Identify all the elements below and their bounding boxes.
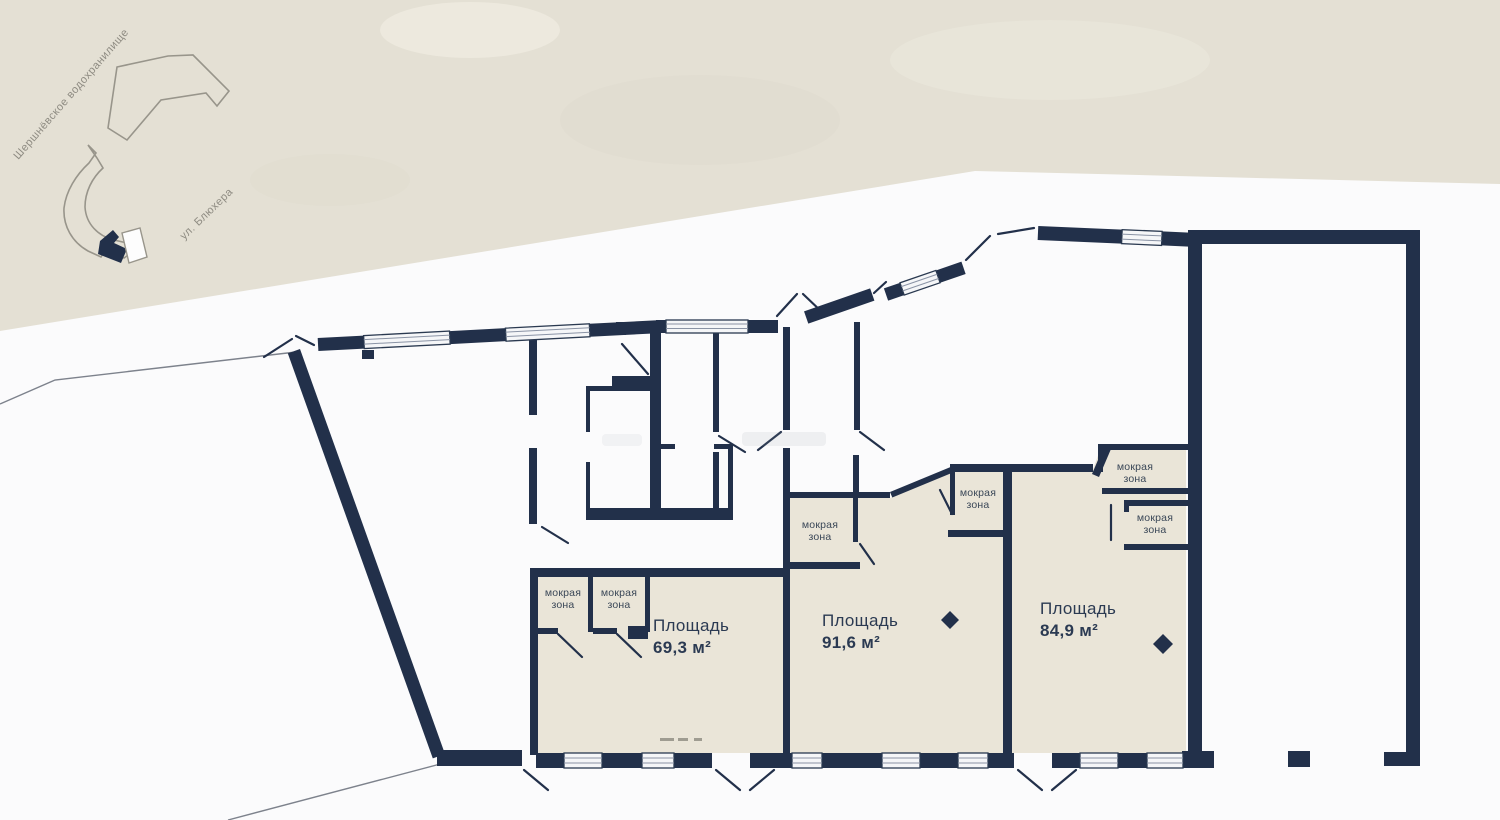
room-area-caption: Площадь (822, 610, 898, 632)
room-area-caption: Площадь (1040, 598, 1116, 620)
wetzone-label-69b: мокрая зона (584, 587, 654, 612)
floor-plan-canvas (0, 0, 1500, 820)
room-91-6-label: Площадь 91,6 м² (822, 610, 898, 654)
room-area-value: 84,9 м² (1040, 620, 1116, 642)
room-69-3-label: Площадь 69,3 м² (653, 615, 729, 659)
wet-line2: зона (943, 499, 1013, 511)
wetzone-label-84a: мокрая зона (1100, 461, 1170, 486)
wetzone-label-91a: мокрая зона (785, 519, 855, 544)
floorplan-page: Шершнёвское водохранилище ул. Блюхера Пл… (0, 0, 1500, 820)
wet-line1: мокрая (943, 487, 1013, 499)
wet-line2: зона (785, 531, 855, 543)
wetzone-label-84b: мокрая зона (1120, 512, 1190, 537)
wet-line1: мокрая (1100, 461, 1170, 473)
background (0, 0, 1500, 331)
room-area-value: 69,3 м² (653, 637, 729, 659)
wet-line2: зона (1100, 473, 1170, 485)
room-84-9-label: Площадь 84,9 м² (1040, 598, 1116, 642)
room-area-value: 91,6 м² (822, 632, 898, 654)
room-area-caption: Площадь (653, 615, 729, 637)
wet-line1: мокрая (1120, 512, 1190, 524)
wetzone-label-91b: мокрая зона (943, 487, 1013, 512)
wet-line2: зона (1120, 524, 1190, 536)
wet-line1: мокрая (785, 519, 855, 531)
wet-line2: зона (584, 599, 654, 611)
wet-line1: мокрая (584, 587, 654, 599)
